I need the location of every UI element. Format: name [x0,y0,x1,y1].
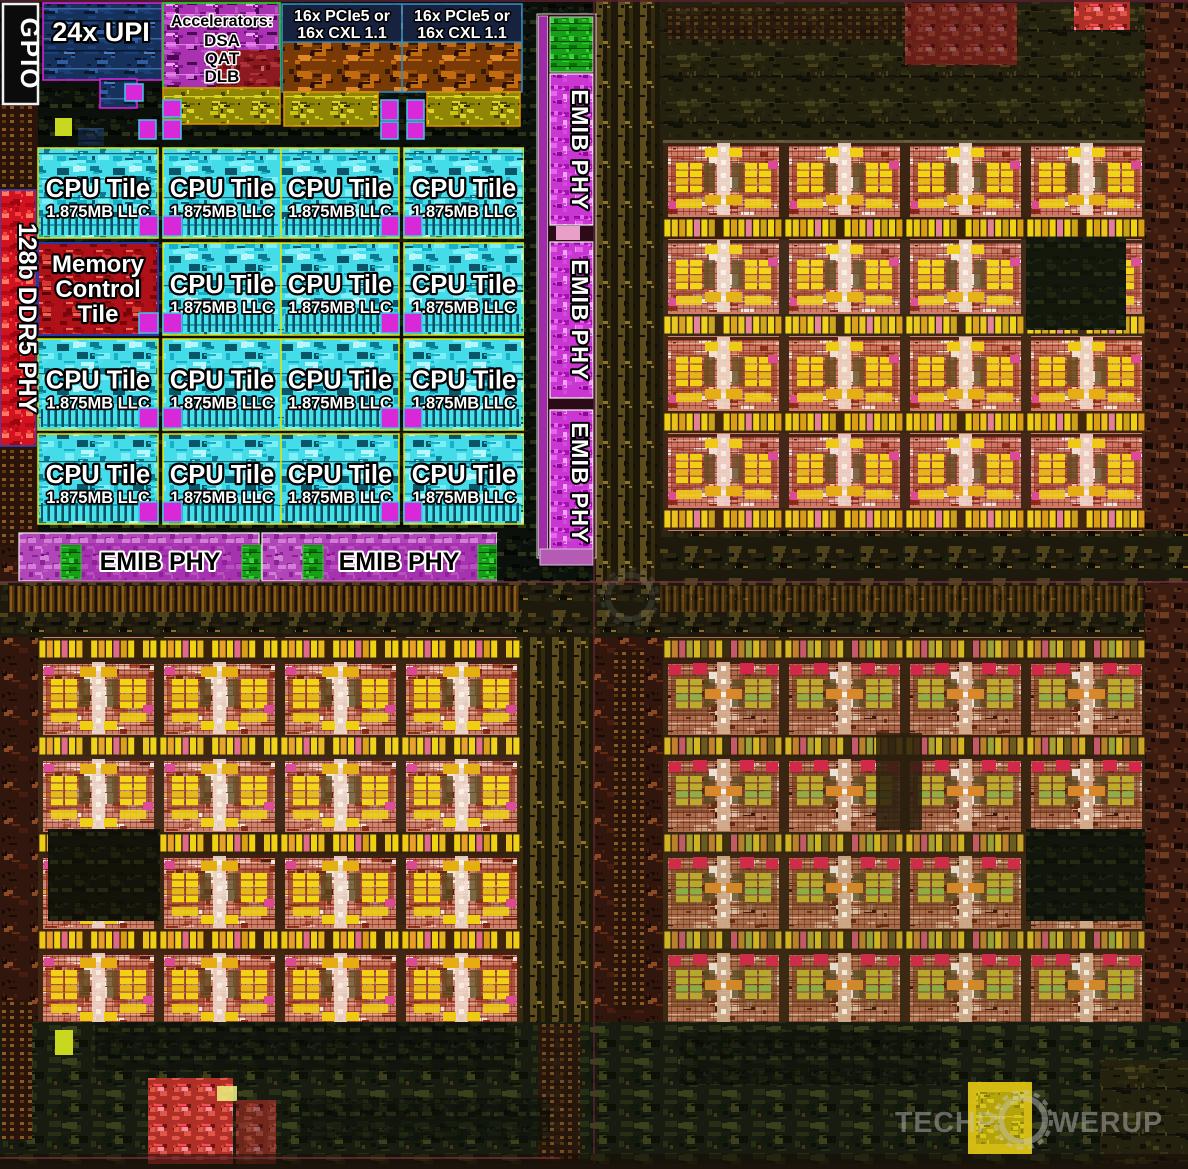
svg-text:1.875MB LLC: 1.875MB LLC [170,299,274,317]
svg-text:1.875MB LLC: 1.875MB LLC [170,489,274,507]
svg-text:CPU Tile: CPU Tile [46,175,150,203]
svg-text:1.875MB LLC: 1.875MB LLC [170,203,274,221]
svg-text:CPU Tile: CPU Tile [170,271,274,299]
svg-text:1.875MB LLC: 1.875MB LLC [288,203,392,221]
svg-text:Control: Control [55,276,140,303]
svg-text:CPU Tile: CPU Tile [412,175,516,203]
svg-text:EMIB PHY: EMIB PHY [100,548,221,576]
svg-text:WERUP: WERUP [1052,1107,1163,1139]
svg-text:16x CXL 1.1: 16x CXL 1.1 [297,25,387,42]
svg-text:QAT: QAT [205,49,240,68]
svg-text:Tile: Tile [78,301,119,328]
svg-text:Accelerators:: Accelerators: [171,13,273,30]
svg-text:EMIB PHY: EMIB PHY [567,422,593,544]
svg-text:CPU Tile: CPU Tile [412,271,516,299]
svg-text:1.875MB LLC: 1.875MB LLC [46,203,150,221]
svg-text:CPU Tile: CPU Tile [46,461,150,489]
svg-text:GPIO: GPIO [15,17,45,90]
svg-text:1.875MB LLC: 1.875MB LLC [412,203,516,221]
svg-text:CPU Tile: CPU Tile [288,271,392,299]
svg-text:CPU Tile: CPU Tile [170,461,274,489]
svg-text:1.875MB LLC: 1.875MB LLC [46,395,150,413]
svg-text:EMIB PHY: EMIB PHY [567,89,593,211]
svg-text:16x CXL 1.1: 16x CXL 1.1 [417,25,507,42]
svg-text:128b DDR5 PHY: 128b DDR5 PHY [13,223,41,414]
svg-text:1.875MB LLC: 1.875MB LLC [412,299,516,317]
svg-text:CPU Tile: CPU Tile [288,175,392,203]
svg-text:1.875MB LLC: 1.875MB LLC [288,299,392,317]
svg-text:Memory: Memory [52,251,145,278]
svg-text:CPU Tile: CPU Tile [288,461,392,489]
svg-text:16x PCIe5 or: 16x PCIe5 or [294,8,390,25]
svg-text:1.875MB LLC: 1.875MB LLC [170,395,274,413]
svg-text:CPU Tile: CPU Tile [170,367,274,395]
svg-text:DSA: DSA [204,31,240,50]
svg-text:CPU Tile: CPU Tile [46,367,150,395]
svg-text:1.875MB LLC: 1.875MB LLC [288,395,392,413]
svg-text:1.875MB LLC: 1.875MB LLC [288,489,392,507]
svg-text:EMIB PHY: EMIB PHY [339,548,460,576]
svg-text:DLB: DLB [205,67,240,86]
svg-text:EMIB PHY: EMIB PHY [567,259,593,381]
svg-text:1.875MB LLC: 1.875MB LLC [412,489,516,507]
svg-text:1.875MB LLC: 1.875MB LLC [412,395,516,413]
svg-text:CPU Tile: CPU Tile [412,461,516,489]
svg-text:CPU Tile: CPU Tile [288,367,392,395]
svg-text:TECHP: TECHP [895,1107,997,1139]
svg-text:CPU Tile: CPU Tile [170,175,274,203]
svg-text:CPU Tile: CPU Tile [412,367,516,395]
svg-text:24x UPI: 24x UPI [52,17,150,47]
svg-text:16x PCIe5 or: 16x PCIe5 or [414,8,510,25]
svg-text:1.875MB LLC: 1.875MB LLC [46,489,150,507]
